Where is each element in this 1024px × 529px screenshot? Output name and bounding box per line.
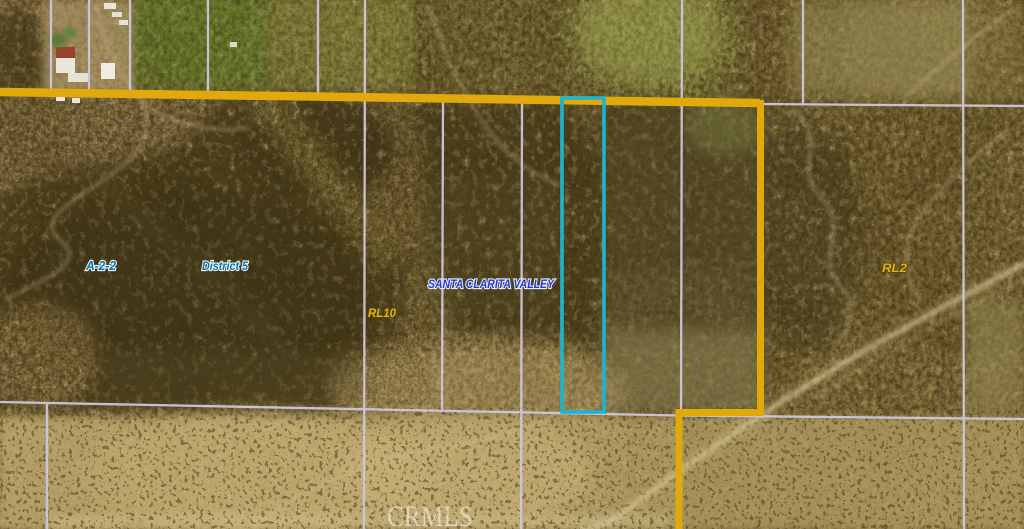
svg-text:A-2-2: A-2-2	[85, 259, 116, 273]
svg-text:RL2: RL2	[882, 261, 907, 275]
svg-text:RL10: RL10	[368, 306, 396, 320]
svg-text:District 5: District 5	[202, 259, 248, 273]
svg-text:CRMLS: CRMLS	[387, 500, 473, 529]
svg-text:SANTA CLARITA VALLEY: SANTA CLARITA VALLEY	[428, 279, 555, 291]
